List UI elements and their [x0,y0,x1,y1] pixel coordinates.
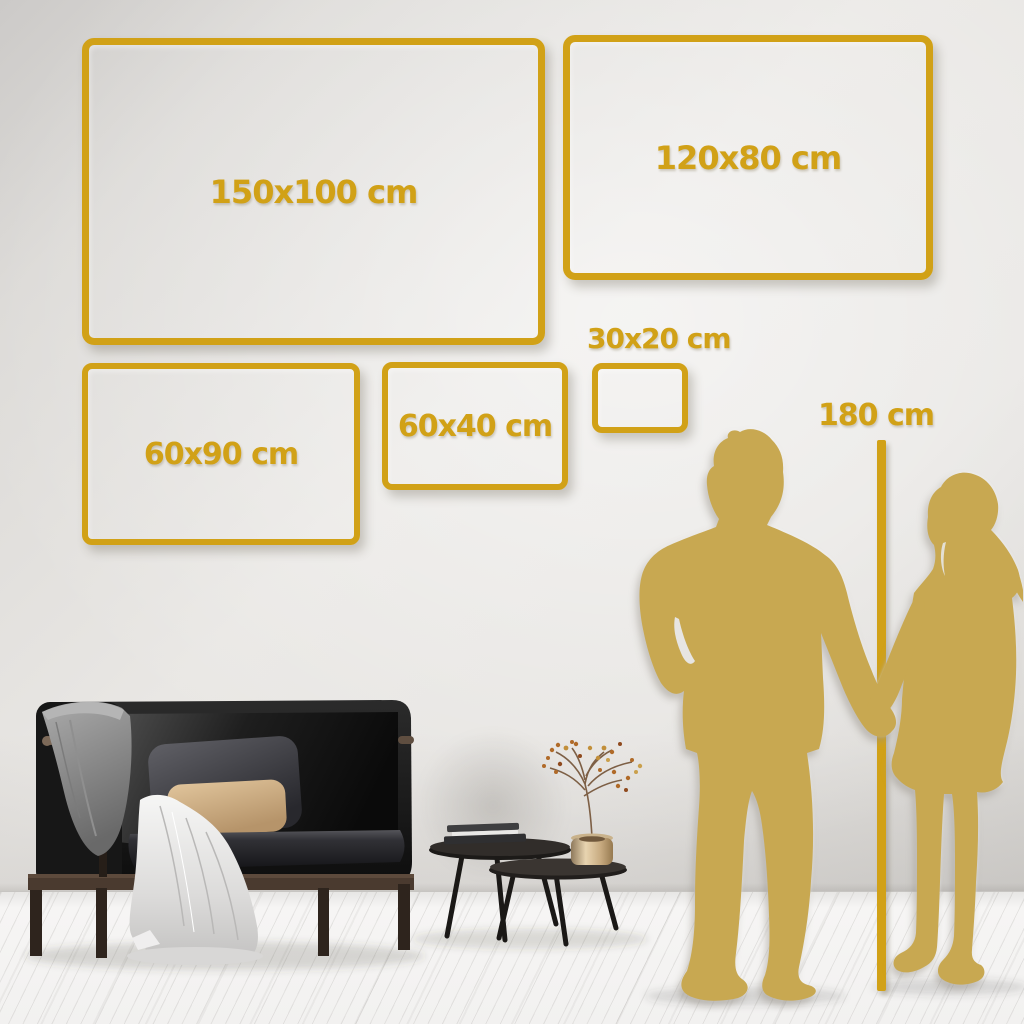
woman-silhouette [892,473,1020,985]
couple-silhouette [0,0,1024,1024]
man-silhouette [639,429,896,1001]
height-reference-label: 180 cm [796,398,956,433]
size-guide-image: 150x100 cm 120x80 cm 60x90 cm 60x40 cm 3… [0,0,1024,1024]
